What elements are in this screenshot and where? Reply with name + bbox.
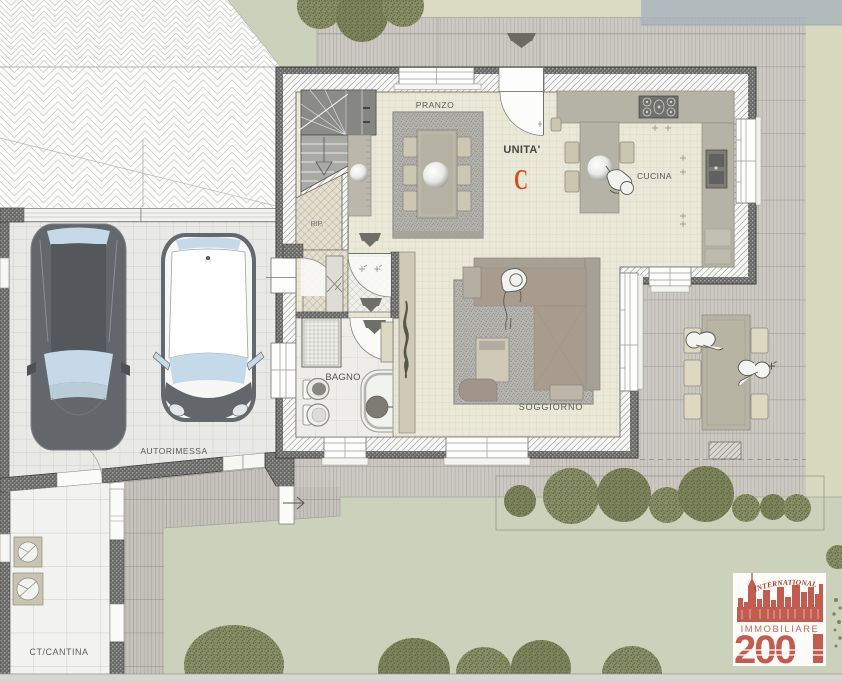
svg-text:C: C [514, 164, 528, 196]
svg-text:AUTORIMESSA: AUTORIMESSA [140, 446, 207, 456]
svg-text:UNITA': UNITA' [503, 144, 540, 156]
svg-text:CT/CANTINA: CT/CANTINA [30, 647, 89, 657]
svg-text:SOGGIORNO: SOGGIORNO [519, 402, 584, 412]
svg-text:CUCINA: CUCINA [637, 171, 672, 181]
svg-text:PRANZO: PRANZO [416, 100, 454, 110]
svg-text:RIP.: RIP. [311, 221, 324, 228]
svg-text:BAGNO: BAGNO [325, 372, 360, 383]
